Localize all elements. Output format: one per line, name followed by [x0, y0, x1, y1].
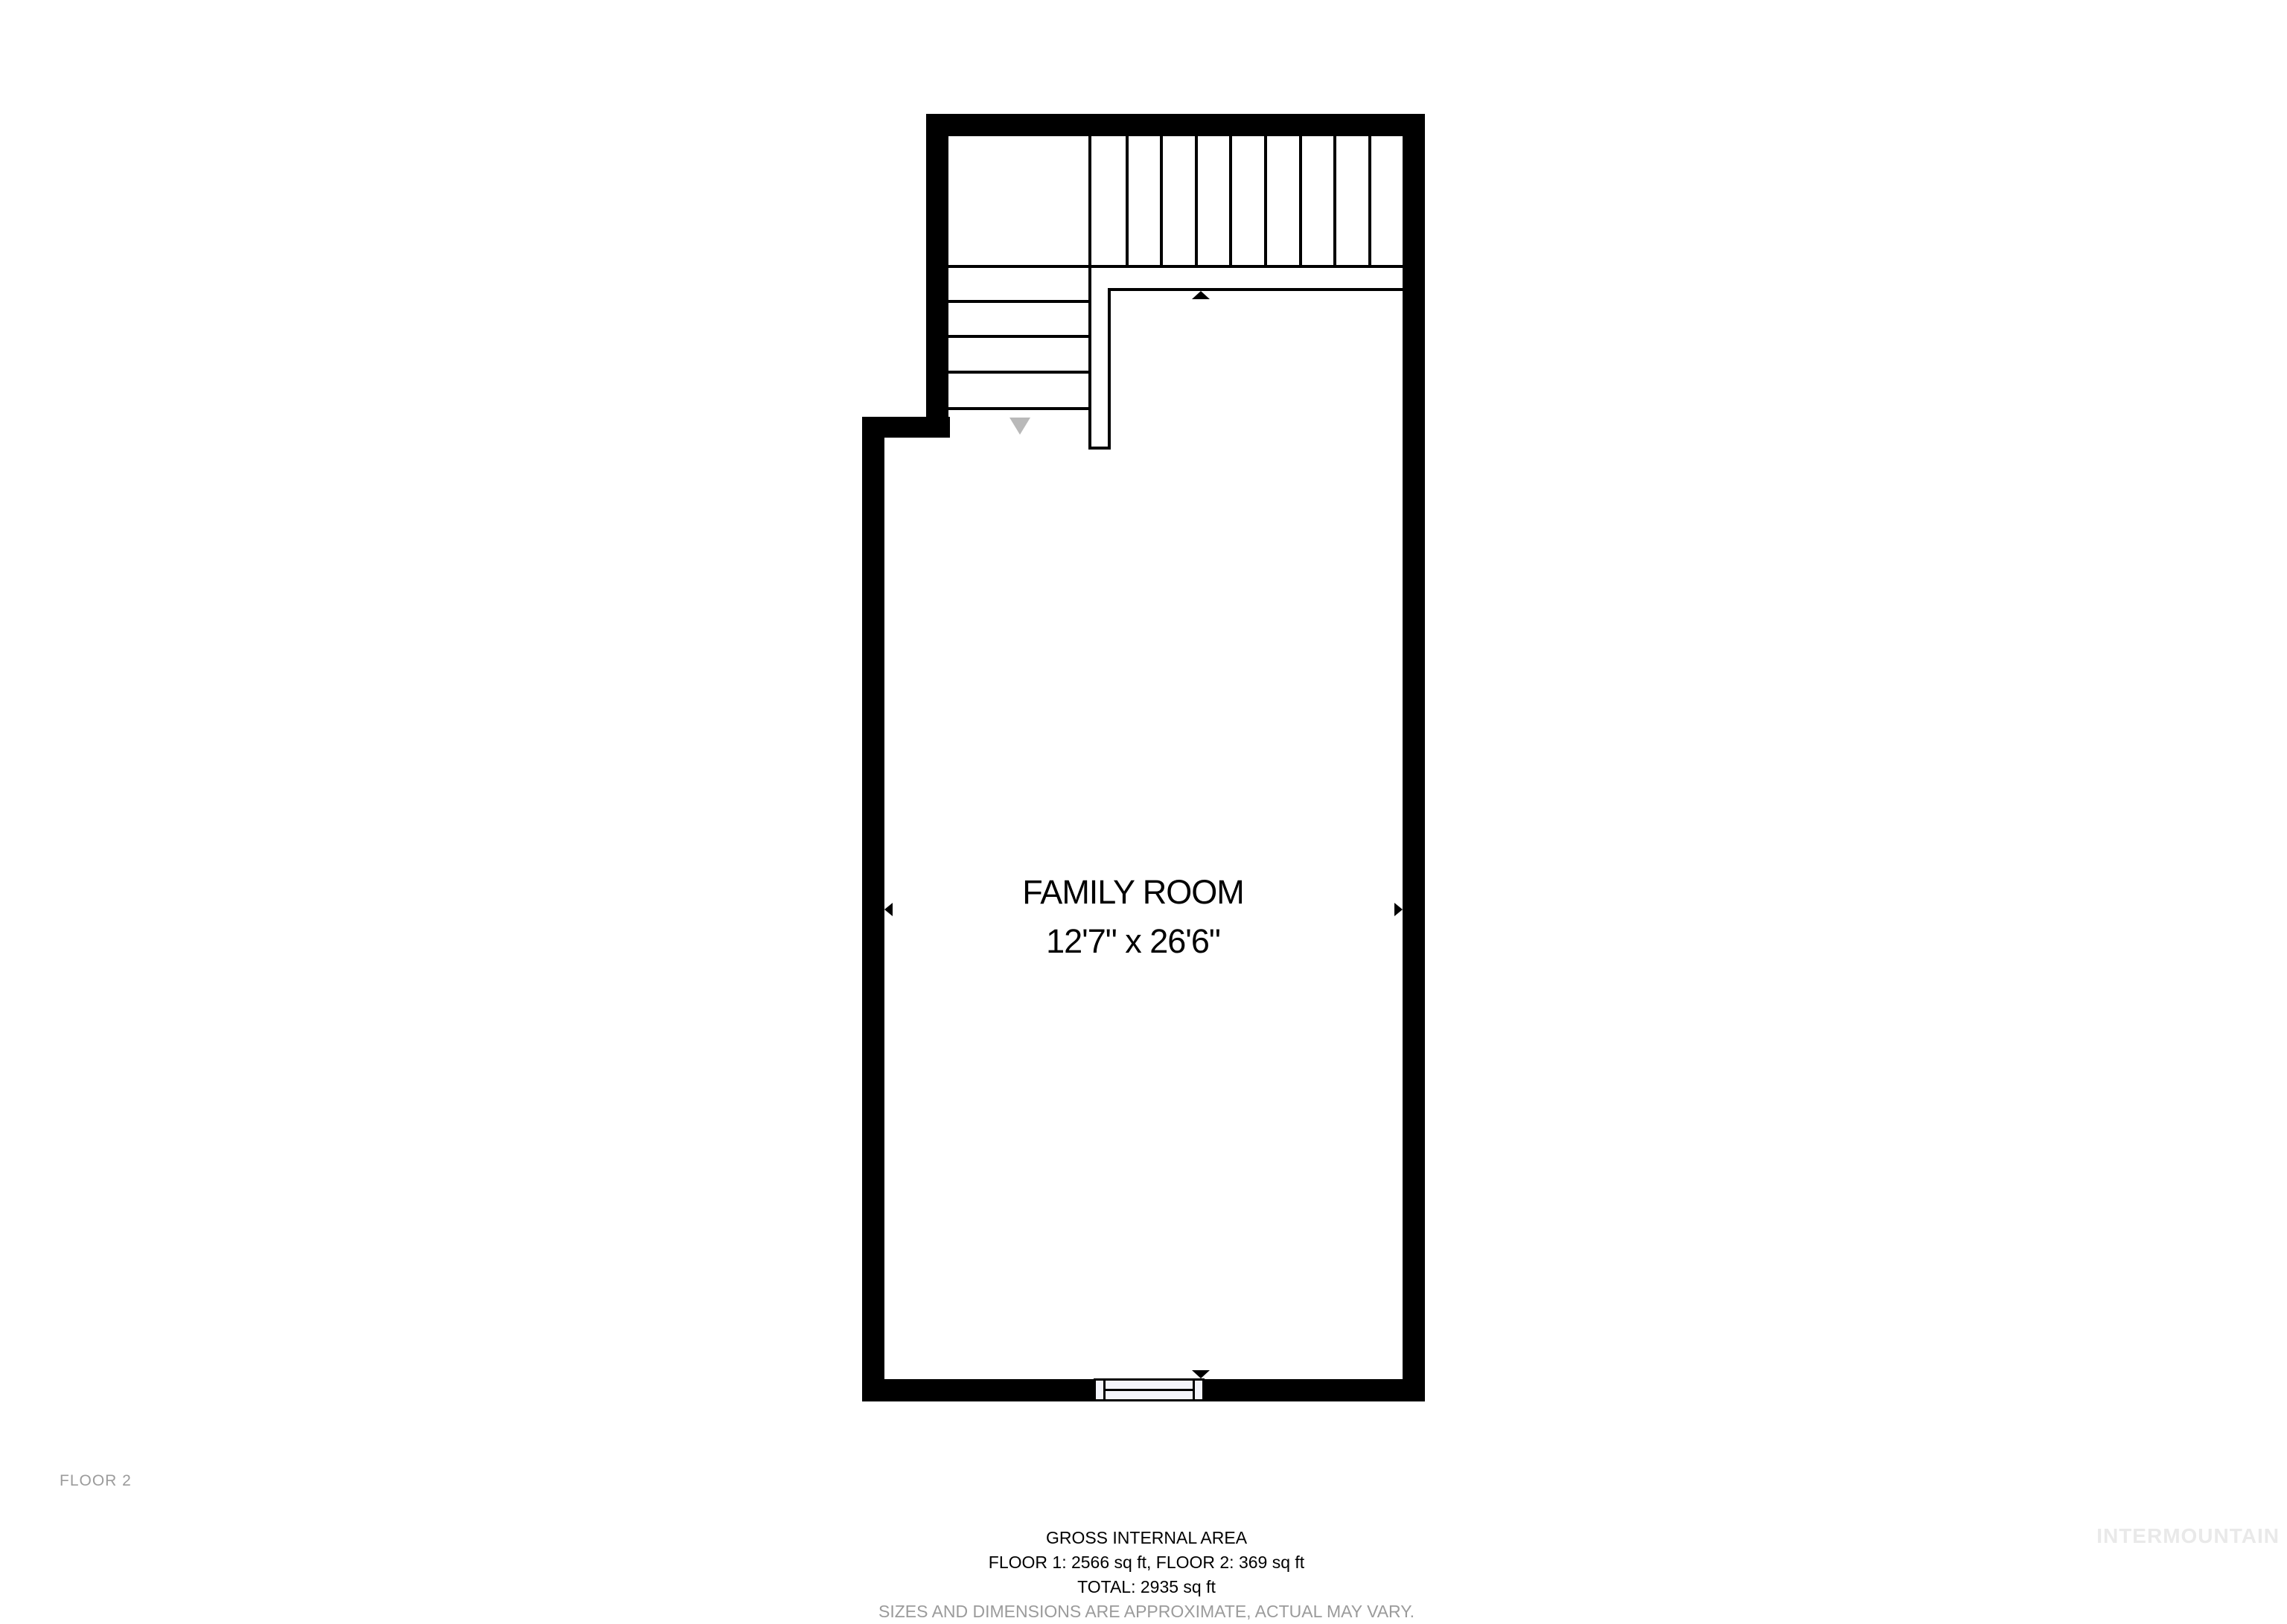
- area-summary-disclaimer: SIZES AND DIMENSIONS ARE APPROXIMATE, AC…: [0, 1599, 2287, 1624]
- room-label: FAMILY ROOM 12'7" x 26'6": [910, 868, 1356, 966]
- stair-tread-line: [948, 407, 1091, 410]
- stair-tread-line: [948, 300, 1091, 303]
- floor-plan: FAMILY ROOM 12'7" x 26'6": [0, 0, 2287, 1617]
- stair-tread-line: [1264, 136, 1267, 268]
- floorplan-page: { "floor_label": "FLOOR 2", "room": { "n…: [0, 0, 2287, 1617]
- dimension-arrow-right-icon: [1394, 903, 1403, 916]
- window: [1094, 1378, 1205, 1401]
- stair-railing-line: [1088, 447, 1111, 450]
- area-summary-floors: FLOOR 1: 2566 sq ft, FLOOR 2: 369 sq ft: [0, 1550, 2287, 1575]
- dimension-arrow-left-icon: [884, 903, 893, 916]
- stair-tread-line: [948, 371, 1091, 374]
- dimension-arrow-down-icon: [1192, 1370, 1210, 1378]
- area-summary-title: GROSS INTERNAL AREA: [0, 1526, 2287, 1550]
- stair-tread-line: [1368, 136, 1371, 268]
- dimension-arrow-up-icon: [1192, 291, 1210, 299]
- stair-tread-line: [948, 335, 1091, 338]
- wall-top: [926, 114, 1425, 136]
- wall-stair-left: [926, 114, 948, 438]
- wall-left: [862, 417, 884, 1401]
- room-dimensions: 12'7" x 26'6": [910, 917, 1356, 966]
- area-summary: GROSS INTERNAL AREA FLOOR 1: 2566 sq ft,…: [0, 1526, 2287, 1624]
- stair-tread-line: [1160, 136, 1163, 268]
- stair-tread-line: [1195, 136, 1198, 268]
- stair-tread-line: [1229, 136, 1232, 268]
- room-name: FAMILY ROOM: [910, 868, 1356, 917]
- stair-down-arrow-icon: [1009, 418, 1030, 435]
- floor-label: FLOOR 2: [60, 1472, 132, 1490]
- watermark: INTERMOUNTAIN: [2096, 1524, 2280, 1548]
- stair-tread-line: [1333, 136, 1336, 268]
- stair-divider-line: [1088, 136, 1091, 450]
- stair-tread-line: [1126, 136, 1129, 268]
- area-summary-total: TOTAL: 2935 sq ft: [0, 1575, 2287, 1599]
- window-pane-line: [1103, 1389, 1195, 1391]
- stair-opening-line: [1108, 288, 1403, 291]
- wall-right: [1403, 114, 1425, 1401]
- stair-tread-line: [1299, 136, 1302, 268]
- stair-railing-line: [1108, 288, 1111, 450]
